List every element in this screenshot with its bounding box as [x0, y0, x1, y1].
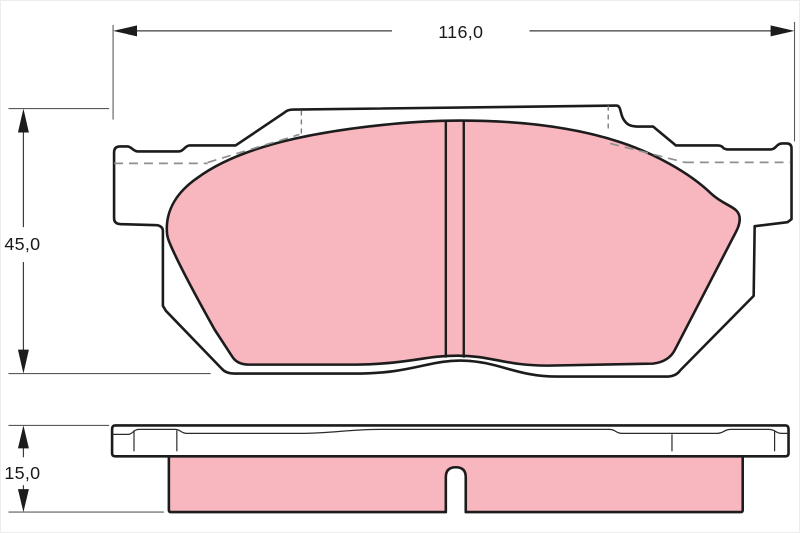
height-dimension-label: 45,0 — [4, 234, 40, 254]
dimension-arrow-icon — [18, 350, 29, 374]
friction-material-side — [169, 456, 743, 512]
width-dimension-label: 116,0 — [438, 22, 483, 42]
brake-pad-technical-drawing: 116,0 45,0 15,0 — [0, 0, 800, 533]
dimension-arrow-icon — [18, 425, 29, 448]
dimension-arrow-icon — [18, 109, 29, 133]
thickness-dimension-label: 15,0 — [4, 463, 40, 483]
dimension-arrow-icon — [113, 25, 137, 36]
side-view — [112, 425, 788, 512]
dimension-arrow-icon — [771, 25, 795, 36]
front-view — [114, 106, 791, 377]
friction-material-front — [167, 121, 740, 366]
dimension-arrow-icon — [18, 489, 29, 512]
